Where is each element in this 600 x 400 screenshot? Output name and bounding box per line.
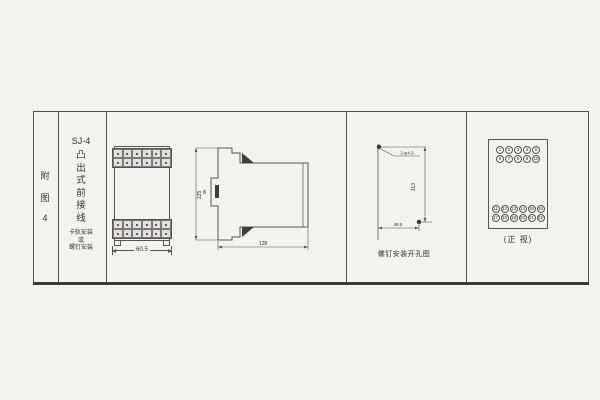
terminal-screw bbox=[142, 158, 152, 167]
terminal-screw bbox=[161, 158, 171, 167]
dim-arrow bbox=[424, 147, 427, 151]
terminal-screw bbox=[132, 149, 142, 158]
title-char: 线 bbox=[76, 213, 86, 226]
title-char: 接 bbox=[76, 200, 86, 213]
terminal-number: 22 bbox=[537, 214, 545, 222]
title-column: SJ-4 凸 出 式 前 接 线 卡轨安装 或 螺钉安装 bbox=[57, 111, 105, 281]
terminal-number: 8 bbox=[514, 155, 522, 163]
model-label: SJ-4 bbox=[72, 136, 91, 146]
terminal-number: 21 bbox=[528, 214, 536, 222]
terminal-number: 2 bbox=[505, 146, 513, 154]
index-char: 附 bbox=[40, 169, 49, 182]
terminal-screw bbox=[161, 229, 171, 238]
terminal-screw bbox=[123, 220, 133, 229]
terminal-number: 6 bbox=[496, 155, 504, 163]
terminal-number: 7 bbox=[505, 155, 513, 163]
terminal-screw bbox=[161, 220, 171, 229]
dim-arrow bbox=[415, 227, 419, 230]
terminal-panel: 12345 678910 111213141516 171819202122 bbox=[488, 139, 548, 229]
dim-arrow bbox=[378, 227, 382, 230]
terminal-screw bbox=[132, 158, 142, 167]
horizontal-dim-label: 48.5 bbox=[394, 222, 403, 227]
column-divider-2 bbox=[106, 112, 107, 282]
terminal-screw bbox=[152, 229, 162, 238]
terminal-number: 3 bbox=[514, 146, 522, 154]
terminal-group-top: 12345 678910 bbox=[491, 145, 545, 164]
drawing-sheet: 附 图 4 SJ-4 凸 出 式 前 接 线 卡轨安装 或 螺钉安装 60.5 bbox=[0, 0, 600, 400]
column-divider-3 bbox=[346, 112, 347, 282]
terminal-number: 20 bbox=[519, 214, 527, 222]
terminal-screw bbox=[161, 149, 171, 158]
terminal-screw bbox=[142, 149, 152, 158]
subtitle-line: 或 bbox=[69, 238, 93, 246]
side-view-outline bbox=[211, 148, 308, 240]
figure-index-label: 附 图 4 bbox=[33, 111, 57, 281]
terminal-row: 111213141516 bbox=[491, 205, 545, 213]
terminal-screw bbox=[152, 220, 162, 229]
index-char: 图 bbox=[40, 191, 49, 204]
side-view-drawing: 125 35 128 bbox=[192, 138, 322, 253]
terminal-number: 19 bbox=[510, 214, 518, 222]
title-char: 式 bbox=[76, 175, 86, 188]
index-char: 4 bbox=[42, 213, 47, 223]
title-char: 凸 bbox=[76, 150, 86, 163]
terminal-screw bbox=[113, 229, 123, 238]
rail-clip-top bbox=[242, 153, 254, 163]
terminal-block-top bbox=[112, 148, 172, 168]
terminal-screw bbox=[113, 220, 123, 229]
terminal-screw bbox=[123, 229, 133, 238]
terminal-screw bbox=[123, 158, 133, 167]
dim-arrow bbox=[195, 236, 198, 240]
terminal-number: 18 bbox=[501, 214, 509, 222]
terminal-row: 678910 bbox=[491, 155, 545, 163]
terminal-number: 5 bbox=[532, 146, 540, 154]
terminal-screw bbox=[132, 220, 142, 229]
terminal-row: 171819202122 bbox=[491, 214, 545, 222]
dim-arrow bbox=[218, 246, 222, 249]
terminal-number: 9 bbox=[523, 155, 531, 163]
mounting-subtitle: 卡轨安装 或 螺钉安装 bbox=[69, 230, 93, 253]
terminal-block-bottom bbox=[112, 219, 172, 239]
drill-hole-drawing: 2-φ4.5 113 48.5 bbox=[368, 140, 440, 252]
holes-label: 2-φ4.5 bbox=[400, 151, 414, 156]
terminal-screw bbox=[132, 229, 142, 238]
dim-arrow bbox=[304, 246, 308, 249]
terminal-screw bbox=[123, 149, 133, 158]
title-char: 出 bbox=[76, 163, 86, 176]
terminal-screw bbox=[152, 149, 162, 158]
terminal-number: 12 bbox=[501, 205, 509, 213]
dim-arrow bbox=[424, 218, 427, 222]
rail-clip-bottom bbox=[242, 227, 254, 237]
terminal-number: 13 bbox=[510, 205, 518, 213]
terminal-screw bbox=[142, 229, 152, 238]
notch-dim-label: 35 bbox=[202, 189, 207, 195]
title-char: 前 bbox=[76, 188, 86, 201]
subtitle-line: 螺钉安装 bbox=[69, 245, 93, 253]
terminal-number: 4 bbox=[523, 146, 531, 154]
clip-spring bbox=[215, 185, 219, 198]
front-view-drawing: 60.5 bbox=[112, 144, 172, 256]
terminal-number: 16 bbox=[537, 205, 545, 213]
terminal-screw bbox=[113, 158, 123, 167]
terminal-group-bottom: 111213141516 171819202122 bbox=[491, 204, 545, 223]
terminal-screw bbox=[113, 149, 123, 158]
width-dim-label: 60.5 bbox=[134, 246, 150, 254]
terminal-panel-caption: (正 视) bbox=[488, 234, 548, 245]
terminal-screw bbox=[152, 158, 162, 167]
terminal-number: 10 bbox=[532, 155, 540, 163]
terminal-number: 17 bbox=[492, 214, 500, 222]
terminal-number: 1 bbox=[496, 146, 504, 154]
drill-caption: 螺钉安装开孔图 bbox=[368, 249, 440, 259]
subtitle-line: 卡轨安装 bbox=[69, 230, 93, 238]
terminal-number: 15 bbox=[528, 205, 536, 213]
terminal-number: 14 bbox=[519, 205, 527, 213]
depth-dim-label: 128 bbox=[259, 241, 268, 247]
column-divider-4 bbox=[466, 112, 467, 282]
width-dimension: 60.5 bbox=[112, 246, 172, 256]
terminal-number: 11 bbox=[492, 205, 500, 213]
dim-arrow bbox=[195, 148, 198, 152]
terminal-screw bbox=[142, 220, 152, 229]
terminal-row: 12345 bbox=[491, 146, 545, 154]
vertical-dim-label: 113 bbox=[411, 183, 417, 191]
